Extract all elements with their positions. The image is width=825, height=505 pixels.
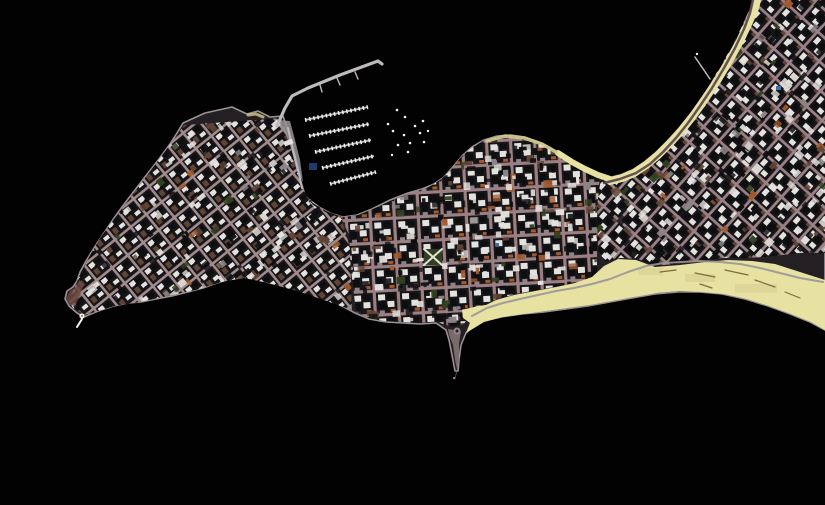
screenshot-root — [0, 0, 825, 505]
satellite-photo — [0, 0, 825, 505]
satellite-photo-canvas — [0, 0, 825, 505]
